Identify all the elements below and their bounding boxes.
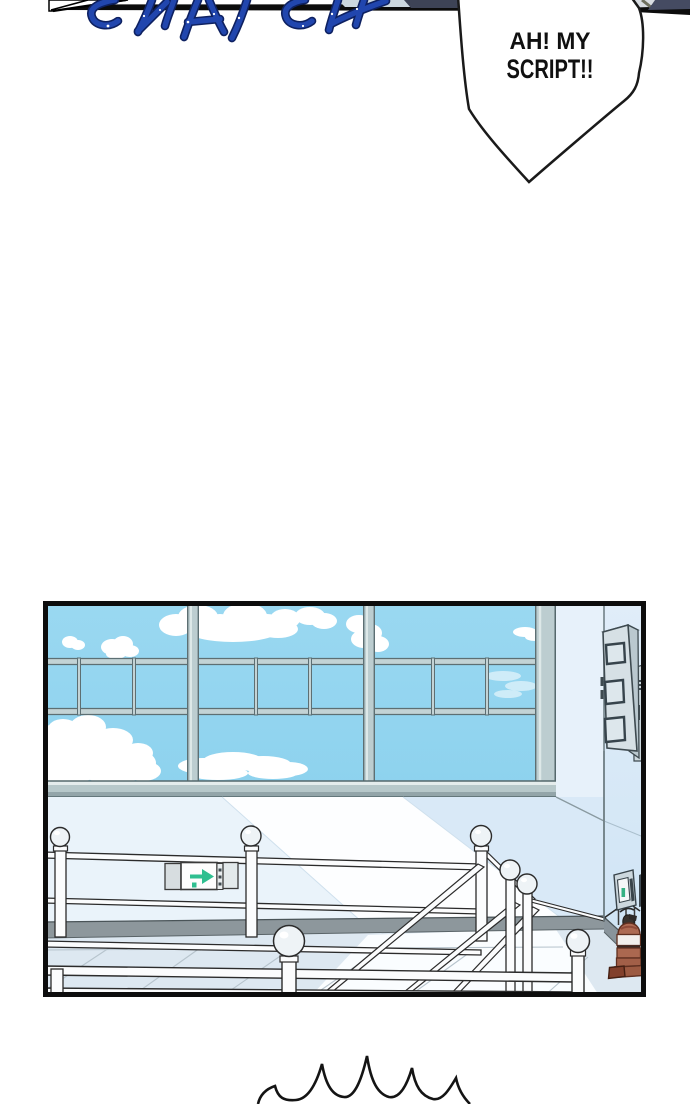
- svg-text:AH! MY: AH! MY: [510, 28, 591, 55]
- svg-text:SCRIPT!!: SCRIPT!!: [507, 54, 594, 84]
